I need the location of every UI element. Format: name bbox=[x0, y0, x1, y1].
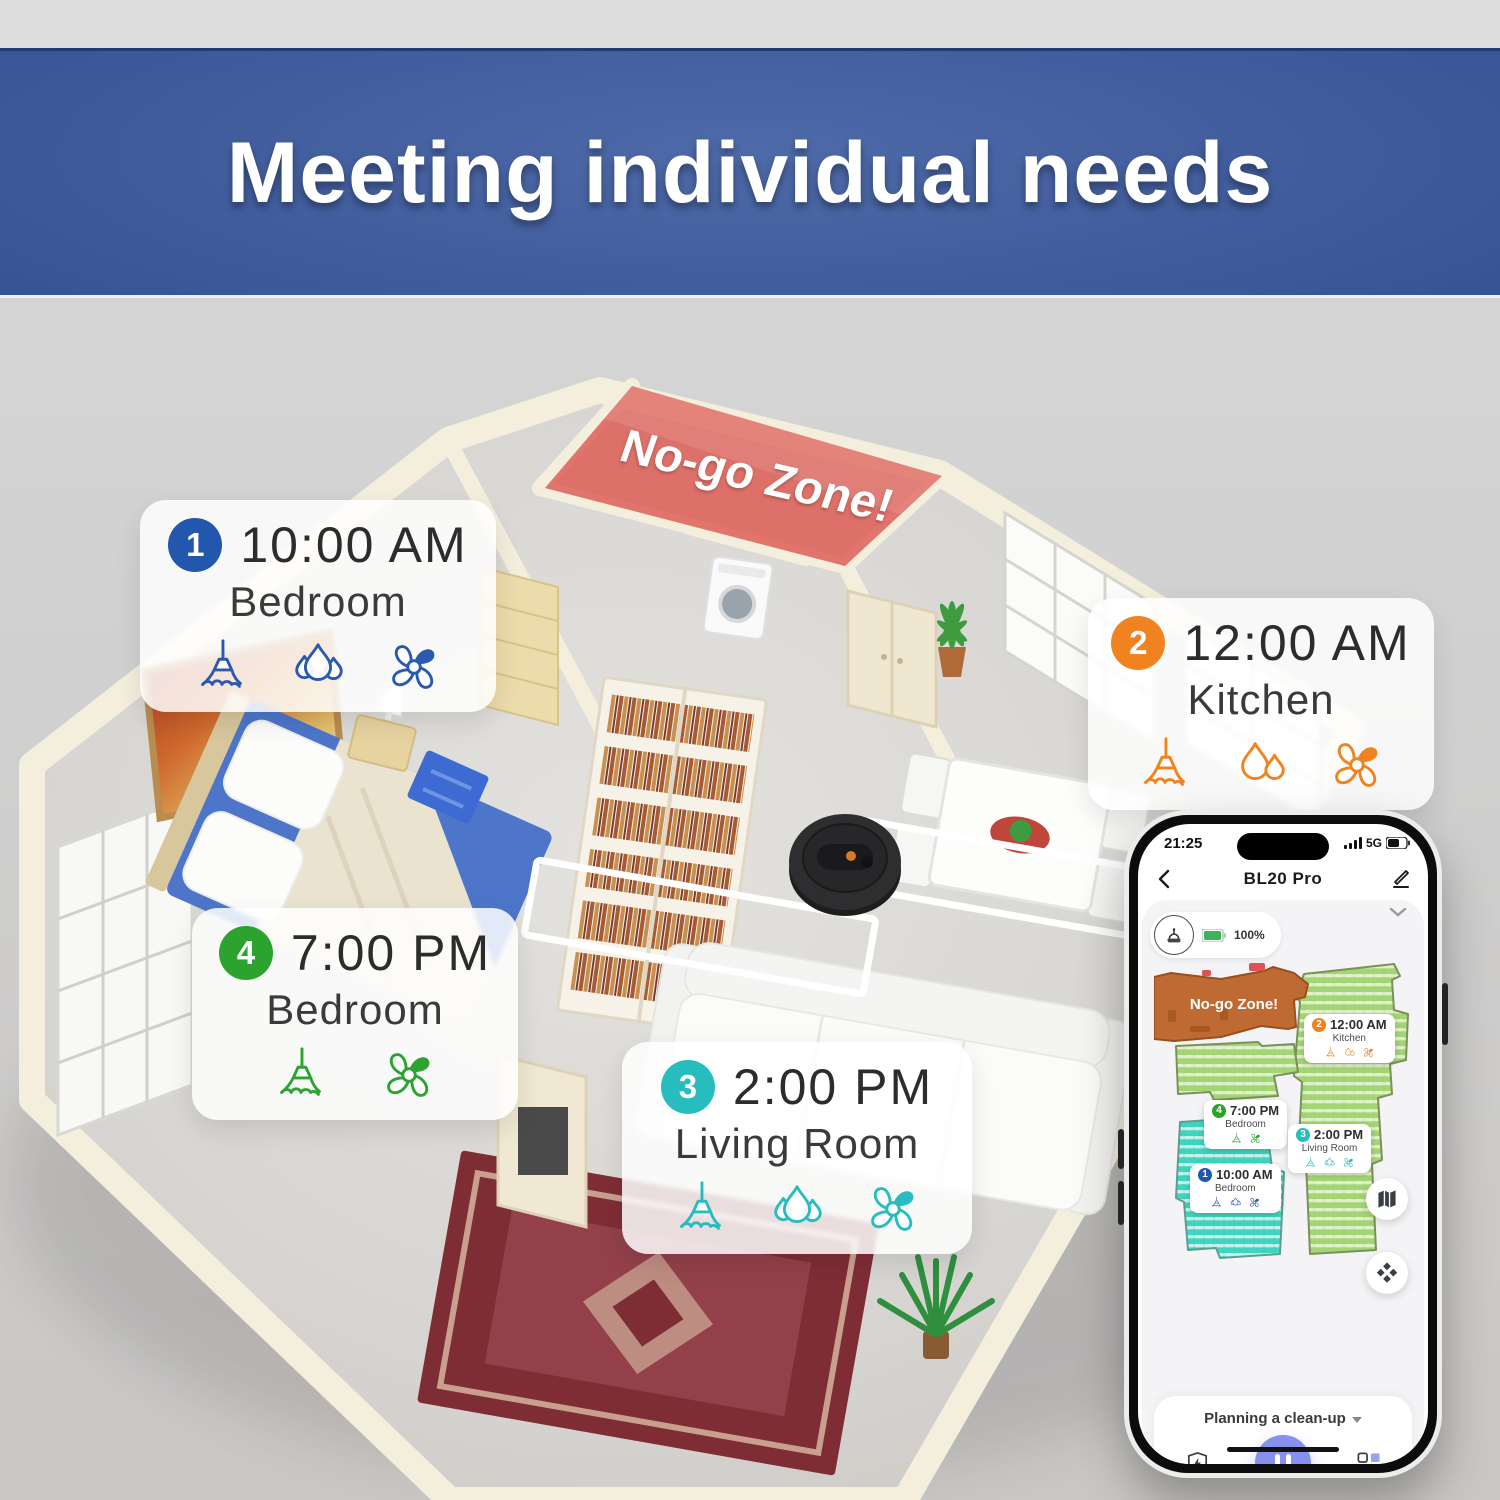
battery-icon bbox=[1386, 837, 1410, 849]
fan-icon bbox=[1249, 1132, 1262, 1145]
dropdown-caret-icon bbox=[1352, 1417, 1362, 1423]
map-icon bbox=[1375, 1187, 1399, 1211]
map-room-name: Bedroom bbox=[1215, 1183, 1256, 1194]
spot-protect-button[interactable] bbox=[1184, 1450, 1211, 1465]
network-type-text: 5G bbox=[1366, 836, 1382, 850]
sweep-icon bbox=[1210, 1196, 1223, 1209]
map-room-green-mid bbox=[1176, 1042, 1298, 1100]
device-title: BL20 Pro bbox=[1138, 869, 1428, 889]
sweep-icon bbox=[1230, 1132, 1243, 1145]
map-badge: 2 bbox=[1312, 1018, 1326, 1032]
map-room-name: Living Room bbox=[1302, 1143, 1358, 1154]
map-time: 7:00 PM bbox=[1230, 1103, 1279, 1118]
map-marker-kitchen[interactable]: 2 12:00 AM Kitchen bbox=[1304, 1014, 1395, 1063]
volume-up-button[interactable] bbox=[1118, 1129, 1124, 1169]
map-time: 10:00 AM bbox=[1216, 1167, 1273, 1182]
control-card: Planning a clean-up bbox=[1154, 1396, 1412, 1464]
schedule-badge-1: 1 bbox=[168, 518, 222, 572]
schedule-time: 7:00 PM bbox=[291, 924, 491, 982]
title-banner: Meeting individual needs bbox=[0, 48, 1500, 298]
schedule-time: 2:00 PM bbox=[733, 1058, 933, 1116]
fan-icon bbox=[1342, 1156, 1355, 1169]
clean-mode-grid-button[interactable] bbox=[1355, 1450, 1382, 1465]
fan-icon bbox=[862, 1178, 924, 1240]
edit-icon[interactable] bbox=[1390, 868, 1412, 890]
washing-machine bbox=[703, 556, 773, 640]
page-title: Meeting individual needs bbox=[227, 124, 1274, 223]
map-view-button[interactable] bbox=[1366, 1178, 1408, 1220]
map-room-name: Kitchen bbox=[1333, 1033, 1366, 1044]
diamonds-icon bbox=[1376, 1262, 1398, 1284]
schedule-badge-4: 4 bbox=[219, 926, 273, 980]
mop-water-icon bbox=[1230, 734, 1292, 796]
robot-vacuum bbox=[789, 814, 901, 916]
mode-dropdown[interactable]: Planning a clean-up bbox=[1154, 1410, 1412, 1427]
map-marker-bedroom-morning[interactable]: 1 10:00 AM Bedroom bbox=[1190, 1164, 1281, 1213]
fan-icon bbox=[383, 636, 445, 698]
schedule-room: Kitchen bbox=[1187, 676, 1334, 724]
sweep-icon bbox=[1134, 734, 1196, 796]
home-indicator[interactable] bbox=[1227, 1447, 1339, 1452]
room-split-button[interactable] bbox=[1366, 1252, 1408, 1294]
mop-water-icon bbox=[766, 1178, 828, 1240]
sweep-icon bbox=[1304, 1156, 1317, 1169]
battery-level-icon bbox=[1202, 929, 1226, 942]
wardrobe bbox=[848, 591, 936, 727]
phone-screen: 21:25 5G bbox=[1138, 824, 1428, 1464]
status-bar: 21:25 5G bbox=[1138, 824, 1428, 864]
robot-avatar-icon bbox=[1154, 915, 1194, 955]
schedule-badge-2: 2 bbox=[1111, 616, 1165, 670]
mop-water-icon bbox=[1343, 1046, 1356, 1059]
map-badge: 4 bbox=[1212, 1104, 1226, 1118]
schedule-card-4: 4 7:00 PM Bedroom bbox=[192, 908, 518, 1120]
schedule-room: Bedroom bbox=[266, 986, 443, 1034]
sweep-icon bbox=[1324, 1046, 1337, 1059]
mop-water-icon bbox=[1323, 1156, 1336, 1169]
battery-percent-text: 100% bbox=[1234, 928, 1265, 942]
map-room-name: Bedroom bbox=[1225, 1119, 1266, 1130]
robot-status-pill[interactable]: 100% bbox=[1150, 912, 1281, 958]
signal-icon bbox=[1344, 837, 1362, 849]
pause-icon bbox=[1275, 1454, 1280, 1464]
map-marker-living-room[interactable]: 3 2:00 PM Living Room bbox=[1288, 1124, 1371, 1173]
map-time: 12:00 AM bbox=[1330, 1017, 1387, 1032]
mode-label: Planning a clean-up bbox=[1204, 1410, 1346, 1427]
schedule-card-2: 2 12:00 AM Kitchen bbox=[1088, 598, 1434, 810]
power-button[interactable] bbox=[1442, 983, 1448, 1045]
schedule-room: Living Room bbox=[675, 1120, 919, 1168]
map-no-go-text: No-go Zone! bbox=[1190, 996, 1278, 1013]
schedule-card-1: 1 10:00 AM Bedroom bbox=[140, 500, 496, 712]
fan-icon bbox=[378, 1044, 440, 1106]
map-marker-bedroom-evening[interactable]: 4 7:00 PM Bedroom bbox=[1204, 1100, 1287, 1149]
schedule-time: 10:00 AM bbox=[240, 516, 467, 574]
schedule-card-3: 3 2:00 PM Living Room bbox=[622, 1042, 972, 1254]
map-time: 2:00 PM bbox=[1314, 1127, 1363, 1142]
volume-down-button[interactable] bbox=[1118, 1181, 1124, 1225]
marketing-graphic: Meeting individual needs bbox=[0, 0, 1500, 1500]
fan-icon bbox=[1248, 1196, 1261, 1209]
fan-icon bbox=[1326, 734, 1388, 796]
collapse-chevron-icon[interactable] bbox=[1388, 906, 1408, 918]
schedule-badge-3: 3 bbox=[661, 1060, 715, 1114]
dynamic-island bbox=[1237, 833, 1329, 860]
fan-icon bbox=[1362, 1046, 1375, 1059]
sweep-icon bbox=[670, 1178, 732, 1240]
top-strip bbox=[0, 0, 1500, 48]
schedule-room: Bedroom bbox=[229, 578, 406, 626]
map-badge: 1 bbox=[1198, 1168, 1212, 1182]
sweep-icon bbox=[270, 1044, 332, 1106]
schedule-time: 12:00 AM bbox=[1183, 614, 1410, 672]
clock-text: 21:25 bbox=[1164, 835, 1202, 852]
app-content: 100% bbox=[1142, 900, 1424, 1460]
mop-water-icon bbox=[287, 636, 349, 698]
phone-mockup: 21:25 5G bbox=[1124, 810, 1442, 1478]
mop-water-icon bbox=[1229, 1196, 1242, 1209]
app-nav-bar: BL20 Pro bbox=[1138, 864, 1428, 898]
map-badge: 3 bbox=[1296, 1128, 1310, 1142]
sweep-icon bbox=[191, 636, 253, 698]
